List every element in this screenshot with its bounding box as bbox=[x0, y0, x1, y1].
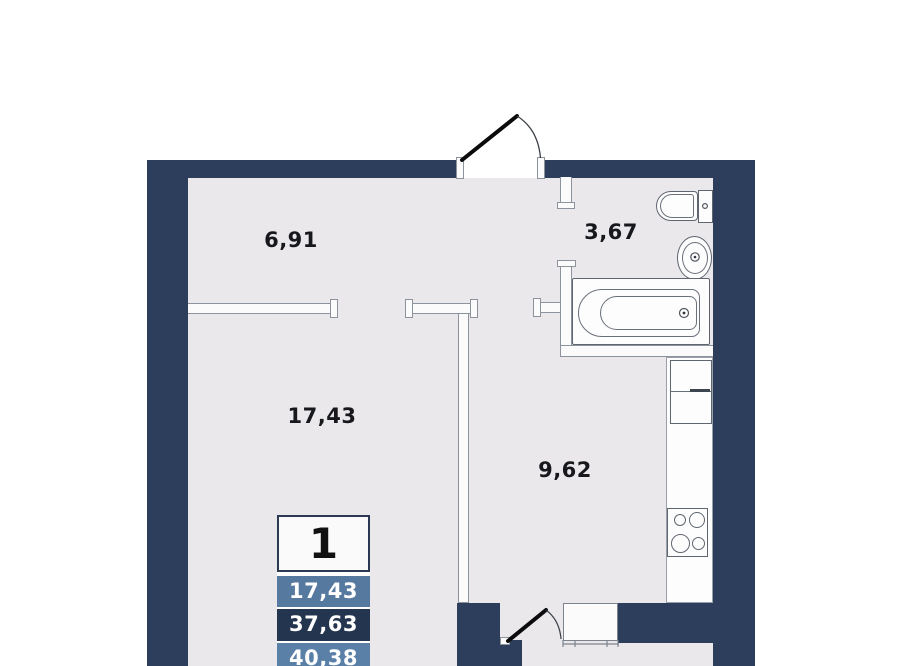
room-label-bathroom: 3,67 bbox=[584, 220, 638, 244]
badge-living-area: 17,43 bbox=[277, 576, 370, 607]
floor-plan: 6,91 3,67 17,43 9,62 1 17,43 37,63 40,38 bbox=[0, 0, 900, 666]
badge-usable-area: 37,63 bbox=[277, 609, 370, 641]
sink-faucet bbox=[691, 253, 699, 261]
bathtub-faucet bbox=[680, 309, 689, 318]
entrance-door bbox=[462, 116, 541, 160]
balcony-window-sill bbox=[563, 640, 619, 647]
room-label-hallway: 6,91 bbox=[264, 228, 318, 252]
room-label-living-room: 17,43 bbox=[288, 404, 357, 428]
balcony-door bbox=[508, 610, 561, 641]
badge-rooms-count: 1 bbox=[277, 515, 370, 572]
plan-linework bbox=[0, 0, 900, 666]
apartment-badge: 1 17,43 37,63 40,38 bbox=[277, 515, 370, 666]
room-label-kitchen: 9,62 bbox=[538, 458, 592, 482]
toilet-flush-button bbox=[703, 204, 708, 209]
badge-total-area: 40,38 bbox=[277, 643, 370, 666]
